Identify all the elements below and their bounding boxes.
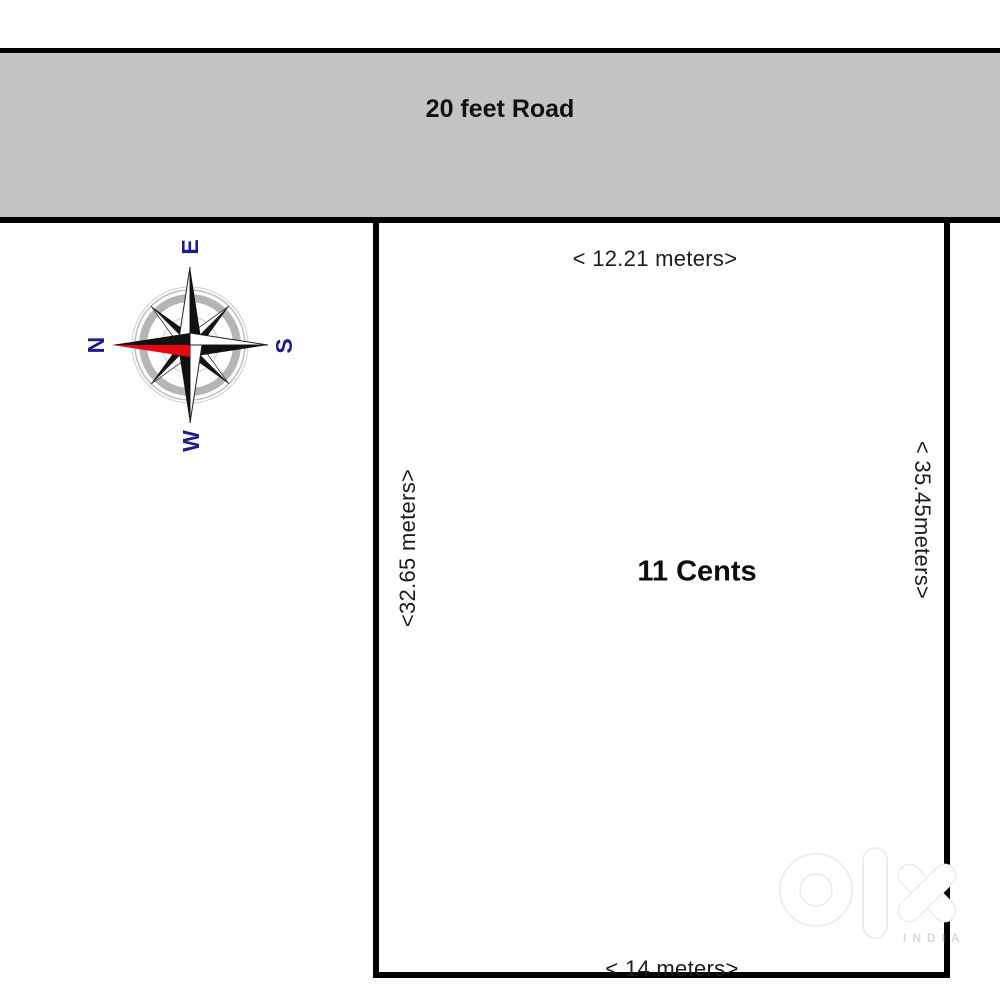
compass-letter-west: W — [178, 430, 204, 452]
compass-letter-north: N — [83, 337, 109, 354]
olx-country-label: INDIA — [903, 931, 966, 945]
compass-cardinal-points — [112, 267, 268, 423]
plot-layout-diagram: 20 feet Road — [0, 0, 1000, 1000]
compass-letter-east: E — [177, 239, 203, 254]
dimension-bottom: < 14 meters> — [605, 956, 738, 982]
dimension-right: < 35.45meters> — [909, 441, 935, 599]
compass-letter-south: S — [271, 338, 297, 353]
dimension-left: <32.65 meters> — [395, 469, 421, 627]
plot-area-label: 11 Cents — [637, 556, 756, 589]
road-band — [0, 48, 1000, 223]
compass-rose-icon: E N S W — [70, 225, 310, 465]
olx-logo-icon: INDIA — [770, 840, 980, 965]
dimension-top: < 12.21 meters> — [573, 246, 738, 272]
road-label: 20 feet Road — [426, 95, 575, 124]
